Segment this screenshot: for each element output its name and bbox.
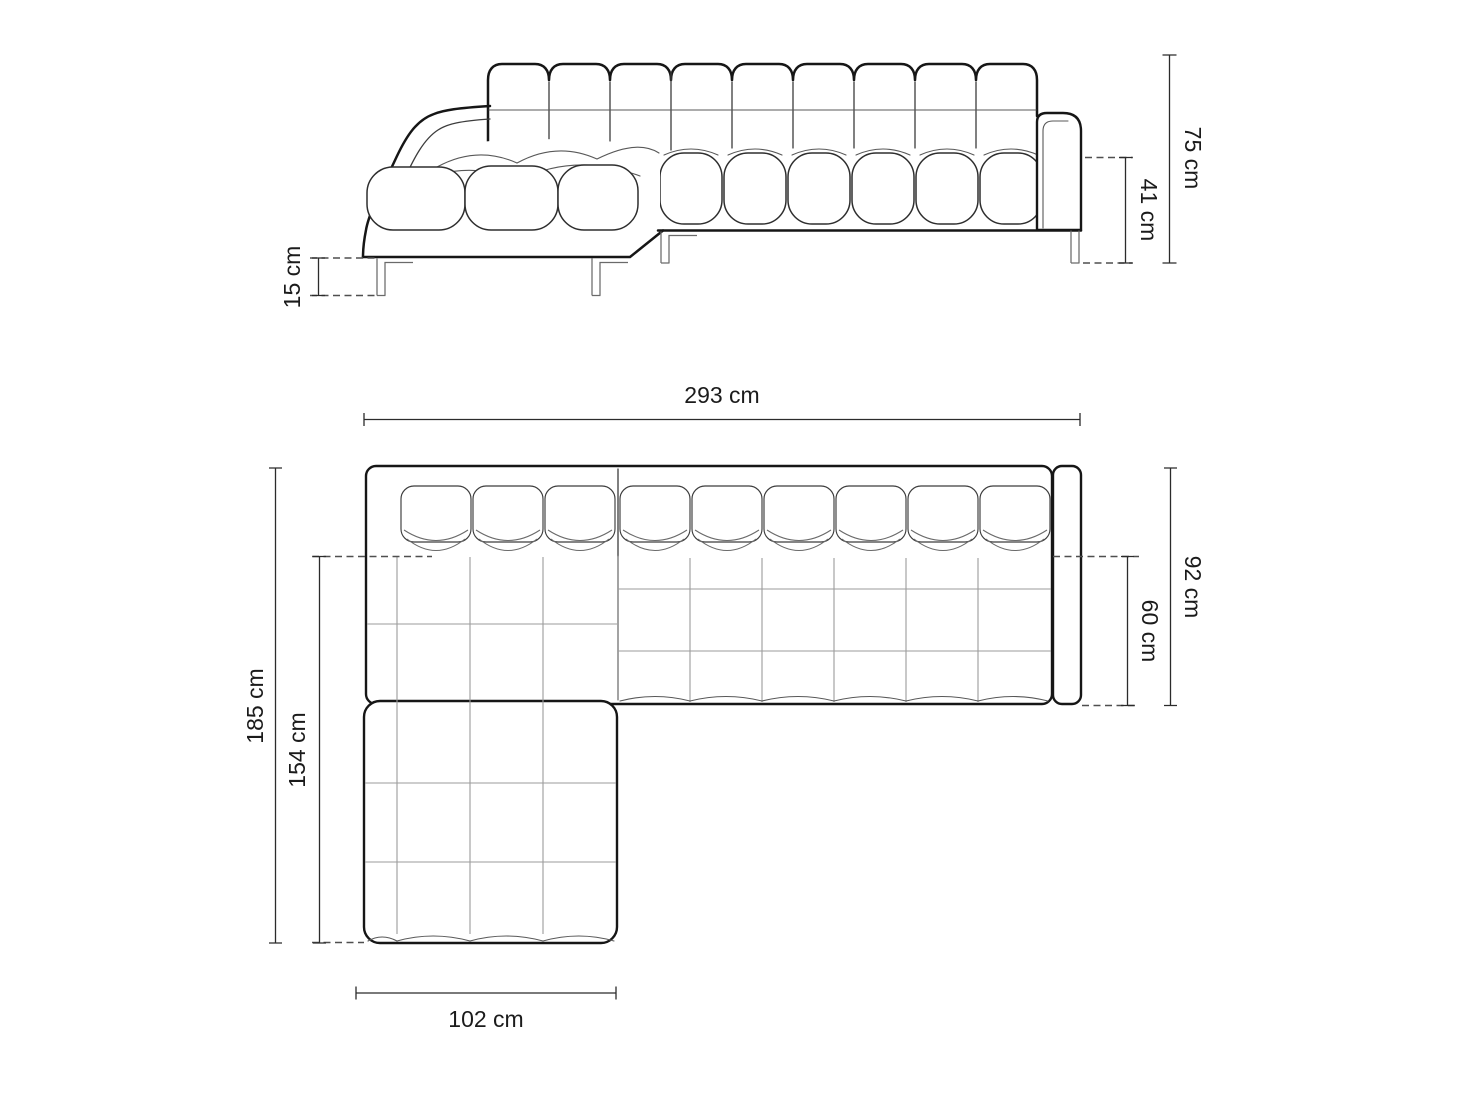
side-elevation-view: 75 cm 41 cm 15 cm: [279, 55, 1206, 308]
sofa-side-outline: [363, 64, 1081, 296]
plan-chaise-module: [364, 701, 617, 943]
chaise-seat-length-label: 154 cm: [284, 712, 310, 787]
seat-height-label: 41 cm: [1136, 179, 1162, 242]
chaise-width-label: 102 cm: [448, 1006, 523, 1032]
dimension-total-height: 75 cm: [1163, 55, 1206, 263]
dimension-total-depth: 92 cm: [1164, 468, 1206, 706]
plan-main-module: [366, 466, 1052, 704]
seat-cushions-side: [660, 149, 1042, 224]
seat-depth-label: 60 cm: [1137, 600, 1163, 663]
leg-height-label: 15 cm: [279, 246, 305, 309]
sofa-legs-side: [377, 231, 1080, 296]
plan-right-armrest: [1053, 466, 1081, 704]
drawing-canvas: 75 cm 41 cm 15 cm: [0, 0, 1459, 1094]
dimension-chaise-length: 185 cm: [242, 468, 282, 943]
chaise-cushion: [367, 167, 465, 230]
dimension-total-width: 293 cm: [364, 382, 1080, 426]
backrest-top-contour: [488, 64, 1037, 148]
sofa-plan-outline: [364, 466, 1081, 943]
total-depth-label: 92 cm: [1180, 556, 1206, 619]
chaise-base-line: [363, 231, 663, 258]
chaise-cushion: [558, 165, 638, 230]
chaise-side: [363, 106, 663, 257]
right-armrest-side: [1037, 113, 1081, 230]
dimension-chaise-width: 102 cm: [356, 987, 616, 1033]
backrest-dividers: [549, 82, 976, 148]
top-plan-view: 293 cm 92 cm 60 cm 185 cm 154 cm 102 cm: [242, 382, 1206, 1032]
sofa-dimension-drawing: 75 cm 41 cm 15 cm: [0, 0, 1459, 1094]
dimension-seat-height: 41 cm: [1083, 158, 1162, 264]
chaise-length-label: 185 cm: [242, 668, 268, 743]
total-width-label: 293 cm: [684, 382, 759, 408]
chaise-cushion: [465, 166, 558, 230]
total-height-label: 75 cm: [1180, 127, 1206, 190]
